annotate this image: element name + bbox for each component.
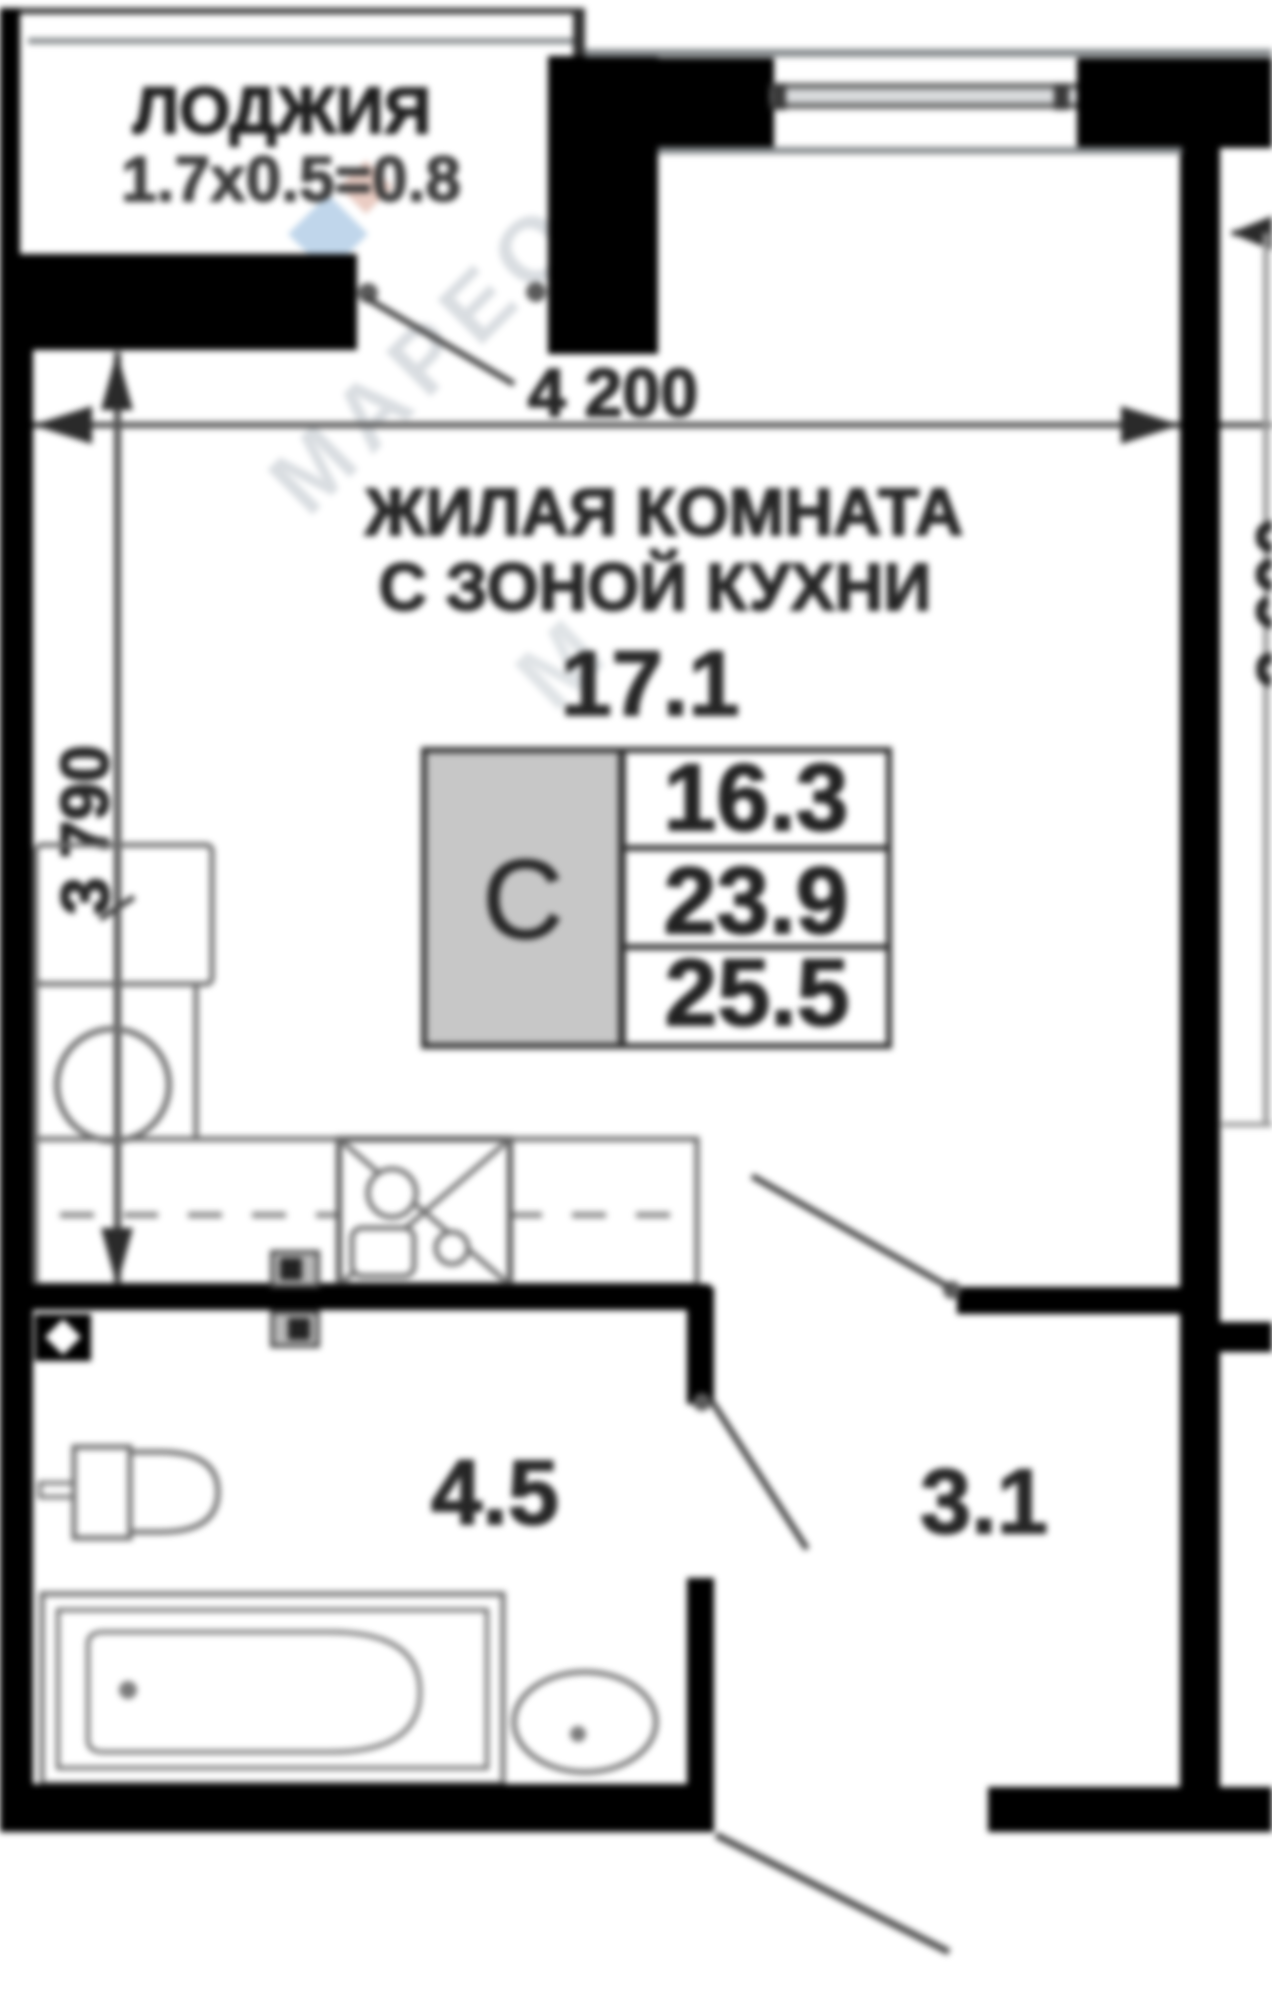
svg-text:3.1: 3.1 (920, 1451, 1048, 1553)
svg-text:ЖИЛАЯ КОМНАТА: ЖИЛАЯ КОМНАТА (364, 475, 963, 550)
svg-text:С: С (483, 837, 564, 962)
svg-text:25.5: 25.5 (665, 940, 850, 1046)
svg-text:1.7х0.5=0.8: 1.7х0.5=0.8 (121, 143, 461, 215)
svg-text:3 600: 3 600 (1243, 518, 1272, 688)
svg-text:4.5: 4.5 (431, 1442, 559, 1544)
svg-text:ЛОДЖИЯ: ЛОДЖИЯ (133, 73, 431, 147)
svg-text:16.3: 16.3 (664, 745, 849, 851)
svg-text:4 200: 4 200 (528, 355, 698, 431)
svg-text:С ЗОНОЙ КУХНИ: С ЗОНОЙ КУХНИ (379, 549, 932, 625)
svg-text:3 790: 3 790 (47, 745, 123, 915)
svg-text:17.1: 17.1 (560, 633, 739, 735)
svg-text:23.9: 23.9 (664, 848, 849, 954)
